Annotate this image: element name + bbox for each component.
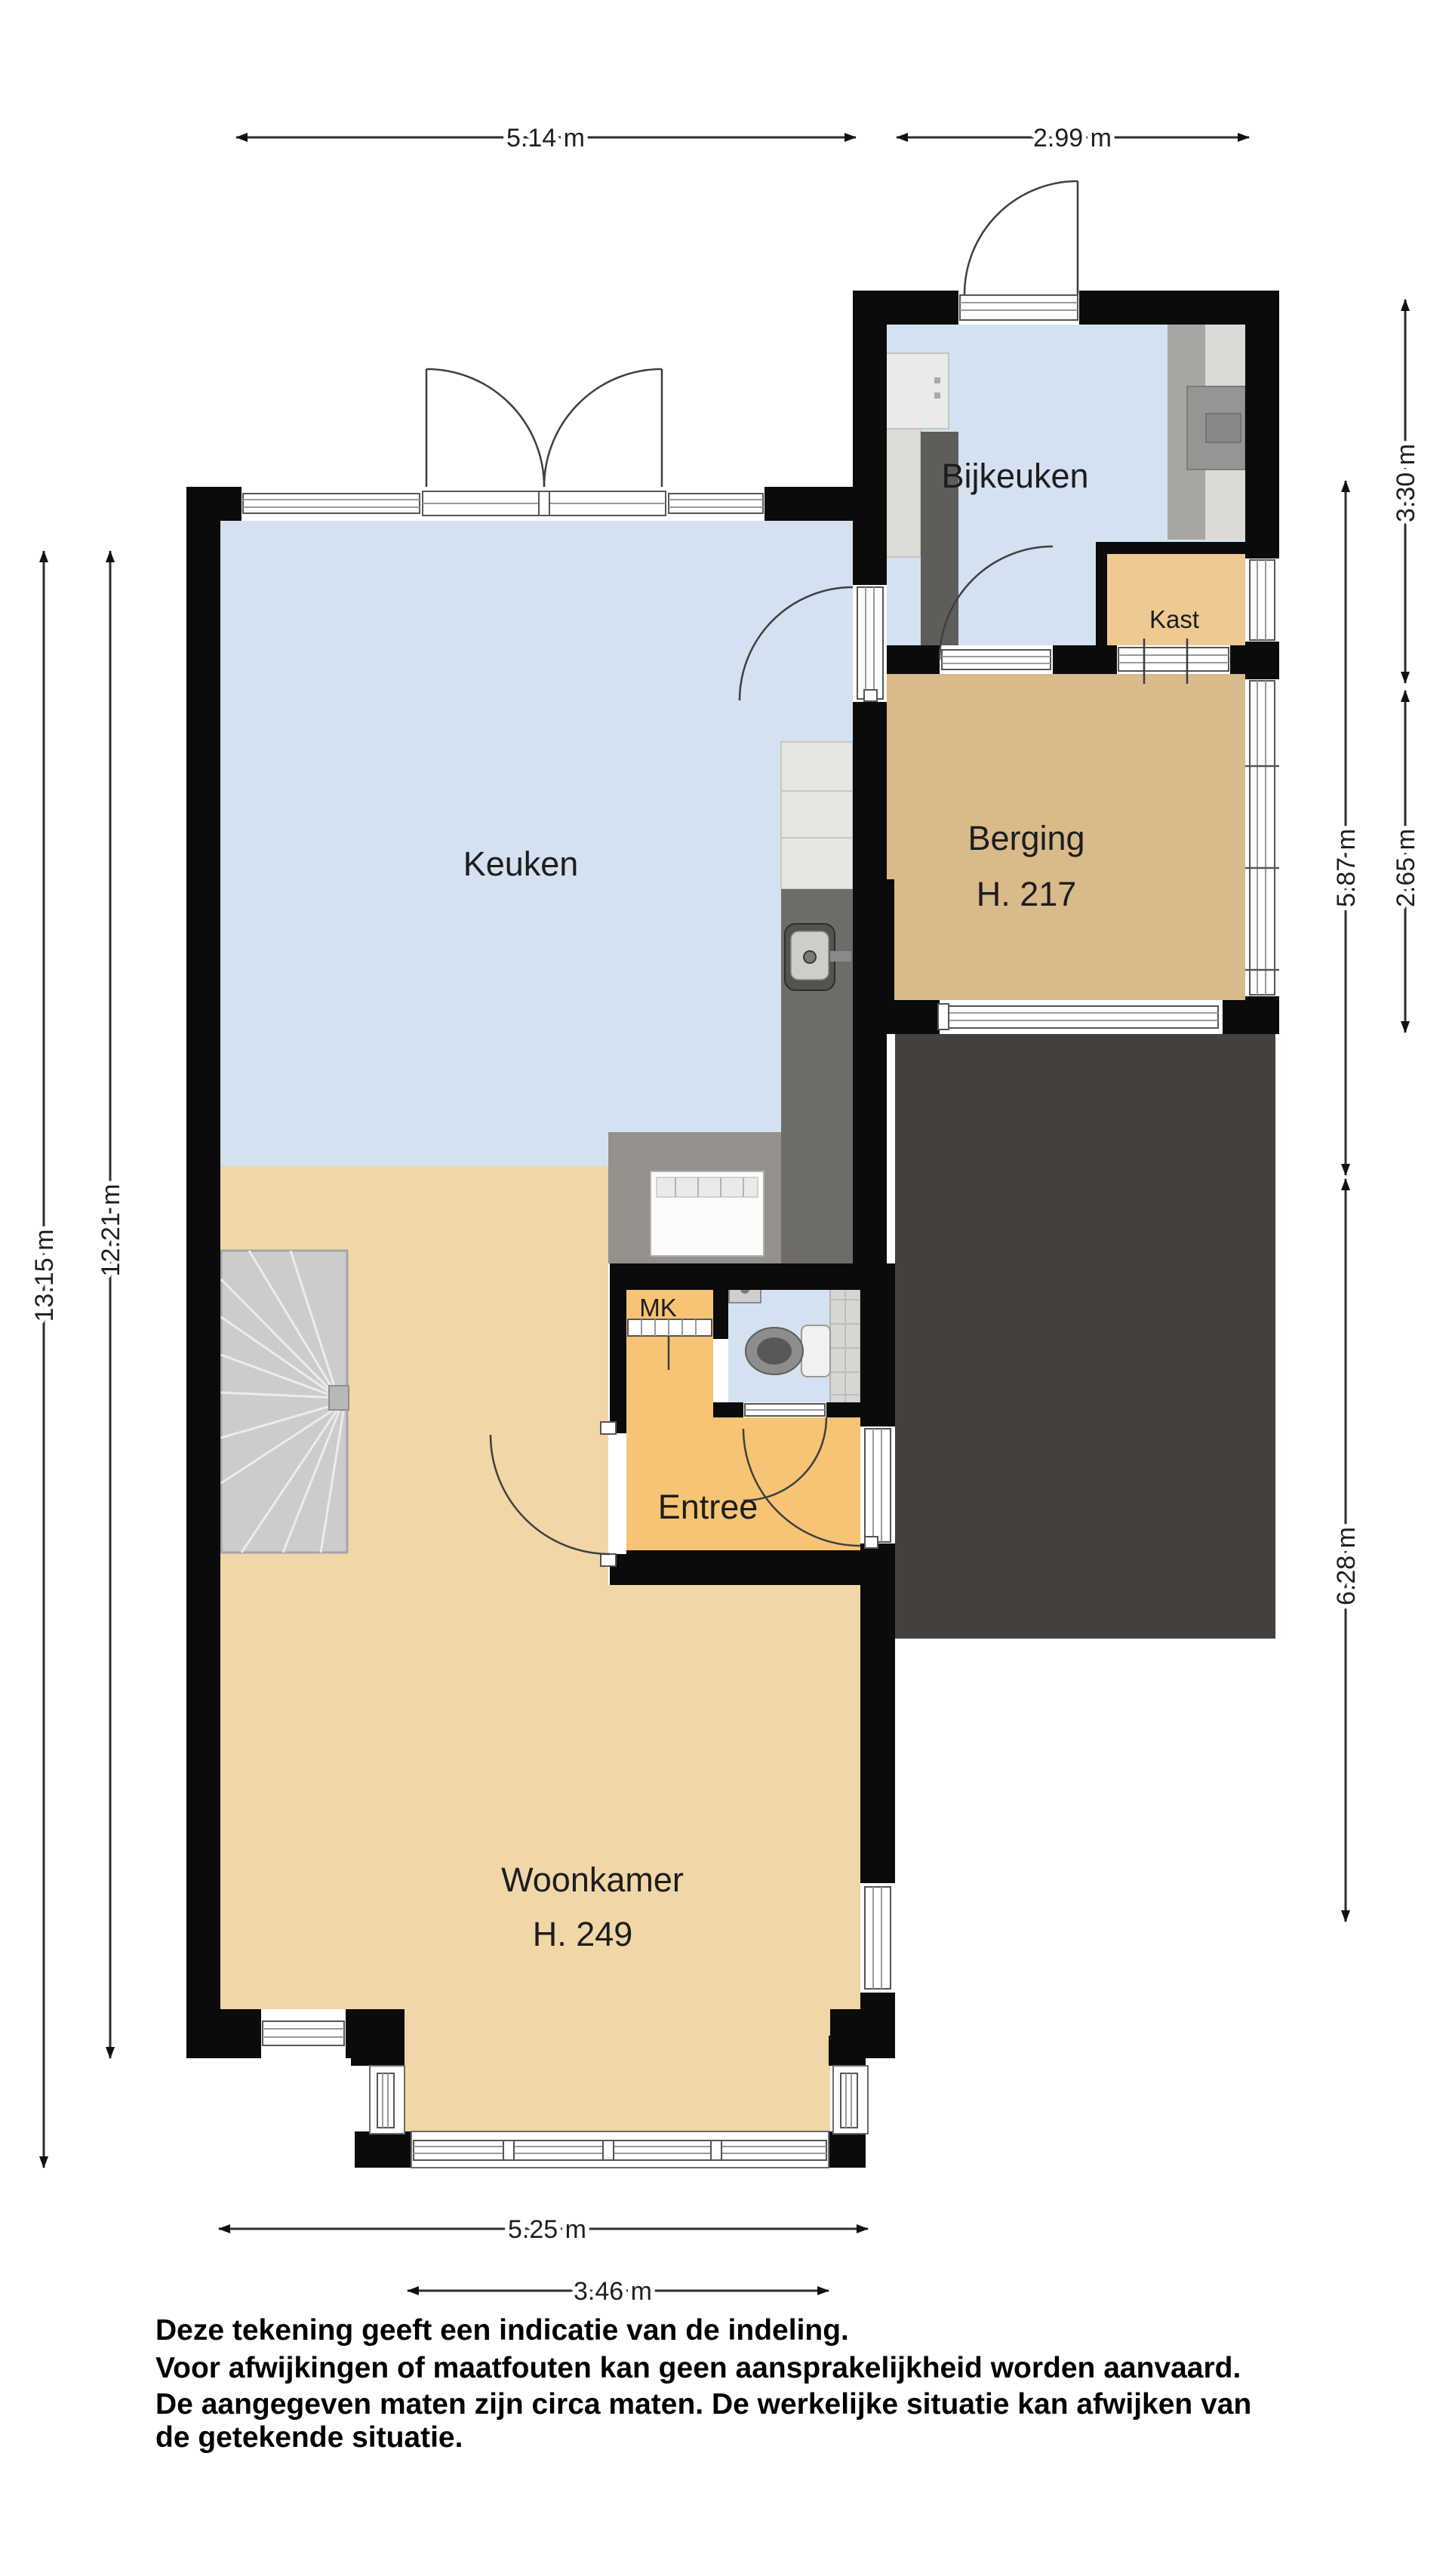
window-keuken-top-right [669,494,763,513]
dimension-label: 6.28 m [1332,1527,1361,1605]
dimension-label: 13.15 m [30,1230,59,1322]
dimension-left-inner: 12.21 m [97,551,125,2058]
dimension-label: 2.99 m [1033,124,1112,152]
wall-bay-left-bottom [355,2131,411,2168]
counter-light [781,742,853,889]
dimension-label: 2.65 m [1392,829,1420,907]
dimension-top-left: 5.14 m [236,124,856,152]
room-ceiling-woonkamer: H. 249 [533,1915,633,1953]
counter-strip [885,429,921,557]
wall-toilet-top [610,1263,895,1290]
window-berging-bottom [938,1004,1218,1029]
room-label-keuken: Keuken [463,845,579,883]
disclaimer-line-2: Voor afwijkingen of maatfouten kan geen … [155,2352,1241,2384]
dimension-top-right: 2.99 m [897,124,1249,152]
radiator-icon [651,1171,764,1256]
dimension-label: 5.87 m [1332,829,1361,907]
dimension-bottom-outer: 5.25 m [219,2215,868,2244]
disclaimer-line-4: de getekende situatie. [155,2421,463,2454]
dimension-right-middle: 2.65 m [1392,691,1420,1033]
wall-kast-left [1096,542,1107,645]
staircase [221,1251,349,1553]
dimension-label: 12.21 m [97,1184,125,1277]
wall-bay-left-top [351,2036,405,2066]
bay-window-left [370,2066,405,2134]
window-woonkamer-bottom-left [263,2021,344,2045]
dimension-left-outer: 13.15 m [30,551,59,2168]
door-bijkeuken-entry [960,181,1078,320]
terrace [895,1034,1275,1639]
wall-kast-top [1096,542,1245,554]
dimension-right-inner-lower: 6.28 m [1332,1179,1361,1922]
dimension-right-inner-upper: 5.87 m [1332,481,1361,1175]
french-doors-keuken [423,369,666,516]
bay-window-front [411,2131,829,2168]
wall-mk-divider [713,1263,728,1339]
wall-left [186,487,220,2058]
room-ceiling-berging: H. 217 [977,875,1077,913]
dimension-label: 3.46 m [574,2277,652,2306]
wall-bay-right-bottom [829,2131,866,2168]
dimension-label: 5.14 m [506,124,585,152]
wall-bijkeuken-left [853,291,887,521]
room-label-berging: Berging [968,819,1084,857]
wall-entree-bottom [610,1550,895,1585]
stairs-newel-post [329,1386,349,1410]
dimension-bottom-inner: 3.46 m [408,2277,829,2306]
floor-plan: Keuken Bijkeuken Kast Berging H. 217 MK … [0,0,1449,2576]
room-label-bijkeuken: Bijkeuken [941,457,1088,495]
toilet-icon [746,1325,830,1377]
room-label-entree: Entree [658,1488,758,1526]
keuken-floor [220,521,853,1166]
wall-berging-pillar [853,879,894,1000]
fridge-icon [885,353,949,429]
dimension-right-top: 3.30 m [1392,300,1420,683]
window-kast-right [1250,560,1275,640]
bay-window-right [833,2066,868,2134]
washer-icon [1187,386,1245,469]
room-label-woonkamer: Woonkamer [501,1860,684,1899]
kitchen-counter [781,742,853,1263]
room-label-kast: Kast [1149,605,1199,633]
disclaimer-line-1: Deze tekening geeft een indicatie van de… [155,2314,849,2347]
room-label-mk: MK [639,1294,677,1322]
window-keuken-top-left [243,494,420,513]
disclaimer-line-3: De aangegeven maten zijn circa maten. De… [155,2388,1251,2421]
dimension-label: 5.25 m [508,2215,586,2244]
window-berging-right [1245,681,1279,995]
disclaimer-text: Deze tekening geeft een indicatie van de… [155,2314,1251,2454]
window-woonkamer-right [865,1887,891,1989]
wall-bay-right-top [829,2036,866,2066]
dimension-label: 3.30 m [1392,444,1420,522]
